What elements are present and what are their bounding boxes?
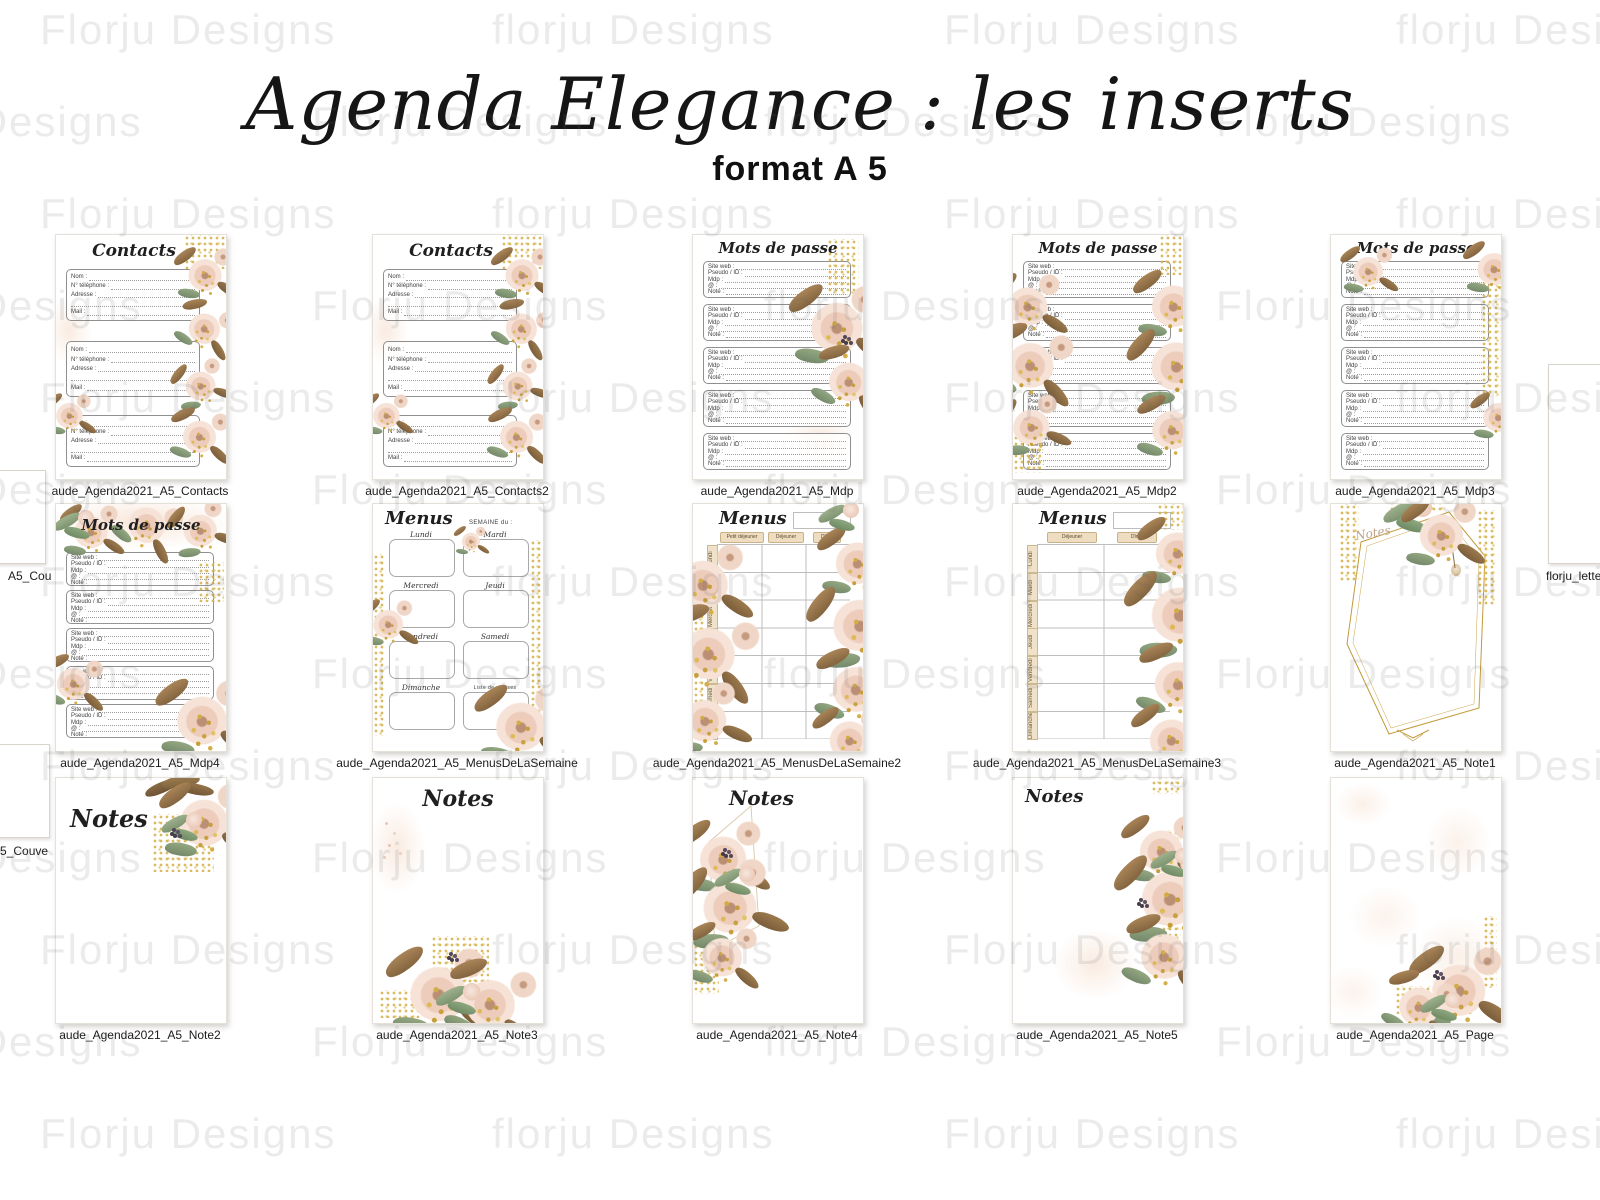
field-label: Mail :	[71, 455, 85, 461]
thumbnail-contacts[interactable]: ContactsNom :N° téléphone :Adresse :Mail…	[55, 234, 227, 480]
insert-title: Menus	[1039, 508, 1107, 529]
watermark-text: florju Designs	[492, 1110, 774, 1158]
flower-blob	[214, 247, 227, 267]
field-label: Note :	[1346, 461, 1362, 467]
field-label: Note :	[708, 332, 724, 338]
thumbnail-label: aude_Agenda2021_A5_Note5	[972, 1028, 1222, 1042]
dotted-line	[1364, 418, 1484, 424]
field-label: Adresse :	[71, 292, 96, 298]
field-label: Note :	[71, 580, 87, 586]
flower-blob	[1477, 251, 1502, 285]
gold-specks	[67, 412, 69, 414]
watermark-text: Florju Designs	[944, 6, 1240, 54]
field-label: Note :	[708, 418, 724, 424]
berries	[1139, 898, 1143, 902]
leaf-blob	[446, 998, 477, 1018]
gold-specks	[832, 321, 837, 326]
watercolor-splotch	[372, 802, 425, 894]
watercolor-splotch	[1335, 782, 1391, 826]
field-label: Note :	[1346, 332, 1362, 338]
floral-cluster	[477, 399, 544, 480]
dotted-line	[89, 618, 209, 624]
thumbnail-mdp[interactable]: Mots de passeSite web :Pseudo / ID :Mdp …	[692, 234, 864, 480]
gold-specks	[1170, 301, 1174, 305]
floral-cluster	[372, 390, 416, 446]
gold-specks	[1438, 530, 1442, 534]
field-label: Mail :	[71, 309, 85, 315]
leaf-blob	[692, 602, 711, 626]
partial-thumbnail-label: A5_Cou	[8, 569, 51, 583]
insert-title: Mots de passe	[693, 239, 863, 257]
partial-thumbnail-label: 5_Couve	[0, 844, 48, 858]
gold-specks	[198, 715, 203, 720]
field-label: Note :	[71, 618, 87, 624]
meal-header: Déjeuner	[1047, 532, 1097, 543]
insert-title: Notes	[373, 786, 543, 812]
leaf-blob	[857, 393, 864, 423]
floral-cluster	[1127, 387, 1184, 480]
gold-specks	[1024, 302, 1028, 306]
berries	[723, 848, 727, 852]
berries	[449, 952, 453, 956]
field-label: Note :	[1346, 418, 1362, 424]
floral-cluster	[1469, 389, 1503, 452]
flower-blob	[394, 393, 410, 409]
field-row: Note :	[1346, 418, 1484, 424]
leaf-blob	[1160, 862, 1184, 880]
menu-cell-label: Samedi	[463, 632, 527, 641]
gold-specks	[386, 621, 389, 624]
thumbnail-label: aude_Agenda2021_A5_MenusDeLaSemaine3	[972, 756, 1222, 770]
field-box: Site web :Pseudo / ID :Mdp :@ :Note :	[1341, 304, 1489, 341]
field-label: Nom :	[71, 274, 87, 280]
floral-cluster	[426, 979, 503, 1025]
watermark-text: florju Designs	[764, 1018, 1046, 1066]
field-label: Note :	[708, 289, 724, 295]
menu-cell	[463, 590, 529, 628]
field-row: Note :	[708, 461, 846, 467]
floral-cluster	[1411, 988, 1481, 1024]
thumbnail-note4[interactable]: Notes	[692, 777, 864, 1024]
field-label: Mail :	[388, 309, 402, 315]
flower-blob	[463, 983, 481, 1001]
field-row: Note :	[1346, 332, 1484, 338]
field-label: Adresse :	[388, 292, 413, 298]
floral-cluster	[1339, 243, 1402, 306]
floral-cluster	[472, 679, 545, 753]
thumbnail-label: aude_Agenda2021_A5_MenusDeLaSemaine2	[652, 756, 902, 770]
menu-cell-label: Lundi	[389, 530, 453, 539]
leaf-blob	[398, 628, 420, 648]
gold-specks	[1366, 268, 1369, 271]
field-box: Site web :Pseudo / ID :Mdp :@ :Note :	[1341, 347, 1489, 384]
flower-blob	[1376, 246, 1394, 264]
flower-blob	[736, 820, 764, 848]
flower-blob	[1038, 273, 1062, 297]
leaf-blob	[82, 690, 105, 714]
watermark-text: Florju Designs	[312, 1018, 608, 1066]
watercolor-splotch	[1425, 806, 1491, 878]
thumbnail-mdp4[interactable]: Mots de passeSite web :Pseudo / ID :Mdp …	[55, 503, 227, 752]
field-label: N° téléphone :	[388, 283, 426, 289]
gold-specks	[517, 721, 522, 726]
leaf-blob	[818, 343, 851, 361]
thumbnail-note1[interactable]: Notes	[1330, 503, 1502, 752]
leaf-blob	[692, 741, 703, 752]
floral-cluster	[809, 503, 864, 568]
floral-cluster	[1399, 503, 1490, 585]
floral-cluster	[1461, 237, 1502, 307]
flower-blob	[1149, 717, 1184, 752]
field-label: Nom :	[388, 347, 404, 353]
flower-blob	[476, 526, 487, 537]
flower-blob	[739, 866, 755, 882]
gold-specks	[1174, 548, 1178, 552]
berries	[1435, 970, 1439, 974]
flower-blob	[77, 393, 93, 409]
watermark-text: florju Designs	[492, 190, 774, 238]
thumbnail-mdp3[interactable]: Mots de passeSite web :Pseudo / ID :Mdp …	[1330, 234, 1502, 480]
dotted-line	[726, 461, 846, 467]
page-subtitle: format A 5	[0, 150, 1600, 189]
flower-blob	[1175, 848, 1184, 864]
floral-cluster	[153, 673, 228, 753]
gold-specks	[1491, 265, 1494, 268]
leaf-blob	[499, 298, 525, 310]
leaf-blob	[216, 279, 227, 301]
field-label: Note :	[708, 375, 724, 381]
thumbnail-label: aude_Agenda2021_A5_MenusDeLaSemaine	[332, 756, 582, 770]
thumbnail-label: aude_Agenda2021_A5_Note4	[652, 1028, 902, 1042]
menu-cell-label: Jeudi	[463, 581, 527, 590]
day-tab: Samedi	[1027, 684, 1038, 712]
thumbnail-label: aude_Agenda2021_A5_Mdp3	[1290, 484, 1540, 498]
floral-cluster	[152, 808, 222, 878]
insert-title: Mots de passe	[1013, 239, 1183, 257]
thumbnail-page[interactable]	[1330, 777, 1502, 1024]
gold-specks	[519, 271, 522, 274]
thumbnail-label: aude_Agenda2021_A5_Note2	[15, 1028, 265, 1042]
menu-cell	[389, 692, 455, 730]
field-label: Note :	[71, 732, 87, 738]
flower-blob	[1483, 401, 1502, 432]
leaf-blob	[477, 543, 490, 555]
leaf-blob	[212, 385, 227, 401]
gold-glitter	[1151, 777, 1183, 794]
leaf-blob	[525, 443, 544, 467]
leaf-blob	[208, 443, 227, 467]
partial-thumbnail-label: florju_lette	[1546, 569, 1600, 583]
field-label: Adresse :	[388, 366, 413, 372]
gold-specks	[1496, 414, 1499, 417]
field-label: Mail :	[388, 455, 402, 461]
collage-canvas: Agenda Elegance : les inserts format A 5…	[0, 0, 1600, 1200]
watermark-text: florju Designs	[0, 1018, 142, 1066]
gold-specks	[469, 539, 471, 541]
insert-title: Notes	[70, 804, 148, 833]
field-label: Nom :	[388, 274, 404, 280]
menu-cell	[389, 539, 455, 577]
dotted-line	[1364, 332, 1484, 338]
thumbnail-note5[interactable]: Notes	[1012, 777, 1184, 1024]
gold-specks	[384, 412, 386, 414]
thumbnail-menus2[interactable]: MenusPetit déjeunerDéjeunerDînerLundiMar…	[692, 503, 864, 752]
partial-thumbnail-right[interactable]	[1548, 364, 1600, 564]
leaf-blob	[721, 721, 754, 746]
thumbnail-mdp2[interactable]: Mots de passeSite web :Pseudo / ID :Mdp …	[1012, 234, 1184, 480]
thumbnail-menus[interactable]: MenusSEMAINE du :LundiMardiMercrediJeudi…	[372, 503, 544, 752]
floral-cluster	[372, 596, 422, 659]
thumbnail-contacts2[interactable]: ContactsNom :N° téléphone :Adresse :Mail…	[372, 234, 544, 480]
leaf-blob	[179, 548, 201, 557]
watermark-text: florju Designs	[1396, 190, 1600, 238]
menu-cell	[463, 641, 529, 679]
field-label: N° téléphone :	[71, 357, 109, 363]
watermark-text: florju Designs	[1396, 6, 1600, 54]
thumbnail-note2[interactable]: Notes	[55, 777, 227, 1024]
field-box: Site web :Pseudo / ID :Mdp :@ :Note :	[703, 433, 851, 470]
watermark-text: Florju Designs	[944, 1110, 1240, 1158]
thumbnail-label: aude_Agenda2021_A5_Mdp2	[972, 484, 1222, 498]
floral-cluster	[1129, 699, 1185, 753]
field-box: Site web :Pseudo / ID :Mdp :@ :Note :	[66, 590, 214, 624]
flower-blob	[186, 812, 202, 828]
field-box: Site web :Pseudo / ID :Mdp :@ :Note :	[1341, 390, 1489, 427]
leaf-blob	[1183, 437, 1184, 465]
day-tab: Mercredi	[1027, 601, 1038, 629]
flower-blob	[843, 503, 859, 518]
thumbnail-label: aude_Agenda2021_A5_Mdp4	[15, 756, 265, 770]
thumbnail-label: aude_Agenda2021_A5_Contacts	[15, 484, 265, 498]
leaf-blob	[529, 385, 544, 401]
dotted-line	[89, 580, 209, 586]
thumbnail-label: aude_Agenda2021_A5_Page	[1290, 1028, 1540, 1042]
berries	[172, 828, 176, 832]
leaf-blob	[828, 516, 856, 534]
field-label: N° téléphone :	[71, 283, 109, 289]
field-row: Note :	[1346, 461, 1484, 467]
flower-blob	[717, 543, 747, 573]
insert-title: Mots de passe	[56, 516, 226, 534]
floral-cluster	[810, 702, 864, 752]
field-label: N° téléphone :	[388, 357, 426, 363]
watermark-text: Florju Designs	[40, 190, 336, 238]
day-tab: Lundi	[1027, 545, 1038, 573]
watermark-text: florju Designs	[492, 6, 774, 54]
watermark-text: florju Designs	[1396, 1110, 1600, 1158]
leaf-blob	[733, 964, 761, 992]
floral-cluster	[55, 390, 99, 446]
leaf-blob	[1388, 968, 1421, 986]
flower-blob	[396, 599, 414, 617]
day-tab: Dimanche	[1027, 712, 1038, 740]
leaf-blob	[78, 418, 98, 435]
day-tab: Mardi	[1027, 573, 1038, 601]
leaf-blob	[395, 418, 415, 435]
field-label: Adresse :	[71, 366, 96, 372]
leaf-blob	[182, 298, 208, 310]
insert-title: Notes	[1025, 786, 1083, 807]
dotted-line	[1364, 461, 1484, 467]
field-box: Site web :Pseudo / ID :Mdp :@ :Note :	[1341, 433, 1489, 470]
watermark-text: Florju Designs	[40, 6, 336, 54]
field-row: Note :	[1346, 375, 1484, 381]
leaf-blob	[1012, 444, 1030, 456]
thumbnail-menus3[interactable]: MenusDéjeunerDînerLundiMardiMercrediJeud…	[1012, 503, 1184, 752]
floral-cluster	[453, 524, 492, 563]
insert-title: Menus	[385, 508, 453, 529]
floral-cluster	[160, 399, 227, 480]
leaf-blob	[533, 279, 544, 301]
thumbnail-label: aude_Agenda2021_A5_Note3	[332, 1028, 582, 1042]
thumbnail-label: aude_Agenda2021_A5_Note1	[1290, 756, 1540, 770]
thumbnail-note3[interactable]: Notes	[372, 777, 544, 1024]
flower-blob	[1473, 945, 1502, 977]
flower-blob	[1453, 503, 1479, 525]
field-row: Note :	[71, 618, 209, 624]
watermark-text: Florju Designs	[944, 190, 1240, 238]
field-label: Nom :	[71, 347, 87, 353]
insert-title: Menus	[719, 508, 787, 529]
field-label: Note :	[1346, 375, 1362, 381]
field-row: Note :	[71, 580, 209, 586]
leaf-blob	[1378, 275, 1400, 295]
leaf-blob	[724, 880, 752, 898]
thumbnail-label: aude_Agenda2021_A5_Mdp	[652, 484, 902, 498]
thumbnail-label: aude_Agenda2021_A5_Contacts2	[332, 484, 582, 498]
watermark-text: Florju Designs	[40, 1110, 336, 1158]
berries	[843, 335, 847, 339]
menu-cell-label: Dimanche	[389, 683, 453, 692]
gold-specks	[699, 579, 704, 584]
gold-specks	[202, 271, 205, 274]
gold-specks	[846, 736, 850, 740]
watermark-text: Florju Designs	[1216, 1018, 1512, 1066]
floral-cluster	[705, 862, 775, 932]
floral-cluster	[1141, 844, 1184, 914]
flower-blob	[531, 247, 544, 267]
day-tab: Vendredi	[1027, 656, 1038, 684]
leaf-blob	[151, 537, 170, 565]
flower-blob	[1183, 704, 1184, 730]
day-tab: Jeudi	[1027, 628, 1038, 656]
flower-blob	[1445, 992, 1461, 1008]
page-title: Agenda Elegance : les inserts	[0, 62, 1600, 146]
flower-blob	[1146, 335, 1184, 395]
leaf-blob	[1045, 428, 1073, 449]
leaf-blob	[1430, 1006, 1458, 1024]
field-label: Note :	[708, 461, 724, 467]
gold-specks	[1168, 735, 1172, 739]
menu-cell-label: Mercredi	[389, 581, 453, 590]
meal-header: Déjeuner	[768, 532, 804, 543]
insert-title: Notes	[729, 786, 794, 810]
leaf-blob	[1455, 540, 1487, 568]
dotted-line	[1364, 375, 1484, 381]
